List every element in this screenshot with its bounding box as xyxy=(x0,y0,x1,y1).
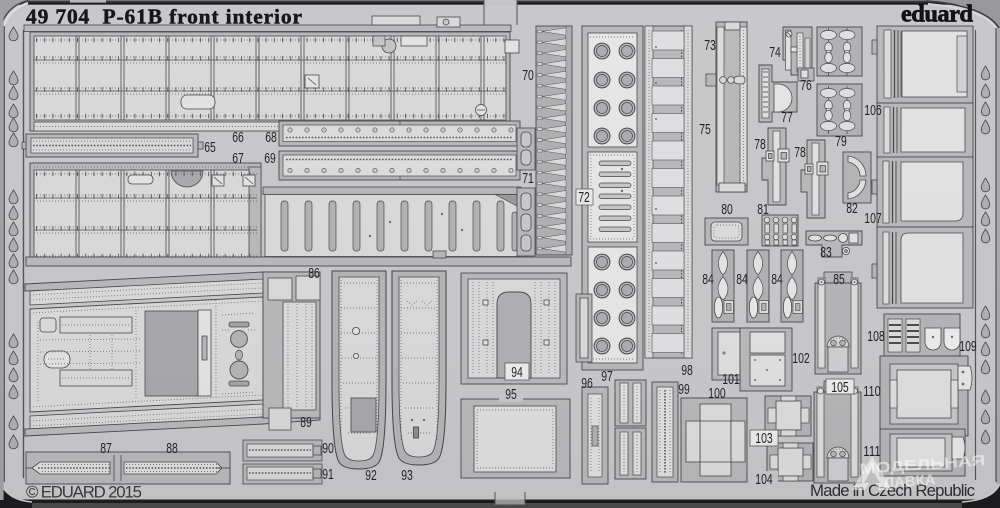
svg-text:ЛАВКА: ЛАВКА xyxy=(883,471,936,492)
